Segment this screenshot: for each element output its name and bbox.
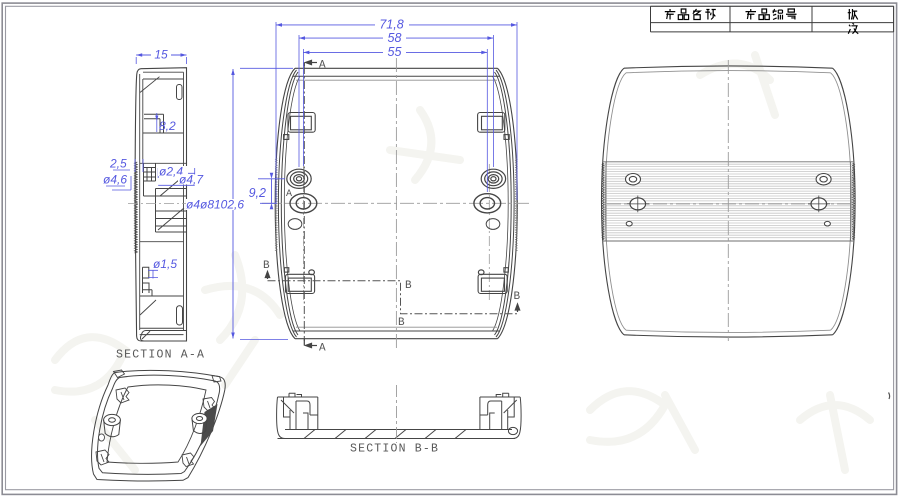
svg-text:9,2: 9,2 xyxy=(249,186,266,200)
svg-text:B: B xyxy=(514,291,521,303)
svg-text:A: A xyxy=(319,343,326,355)
svg-text:71,8: 71,8 xyxy=(379,18,403,32)
svg-text:15: 15 xyxy=(154,47,168,61)
svg-text:58: 58 xyxy=(388,31,402,45)
svg-text:A: A xyxy=(319,60,326,72)
svg-text:8,2: 8,2 xyxy=(159,119,176,133)
svg-text:ø4,6: ø4,6 xyxy=(103,173,127,187)
svg-text:ø1,5: ø1,5 xyxy=(153,257,177,271)
svg-text:B: B xyxy=(405,280,412,292)
svg-text:ø4ø8102,6: ø4ø8102,6 xyxy=(186,197,244,211)
svg-text:2,5: 2,5 xyxy=(109,157,127,171)
svg-text:SECTION A-A: SECTION A-A xyxy=(116,349,205,362)
svg-text:B: B xyxy=(263,260,270,272)
svg-text:A: A xyxy=(286,189,292,200)
svg-text:ø4,7: ø4,7 xyxy=(179,173,204,187)
svg-text:B: B xyxy=(398,317,405,329)
svg-text:55: 55 xyxy=(388,45,402,59)
svg-text:SECTION B-B: SECTION B-B xyxy=(350,443,439,456)
